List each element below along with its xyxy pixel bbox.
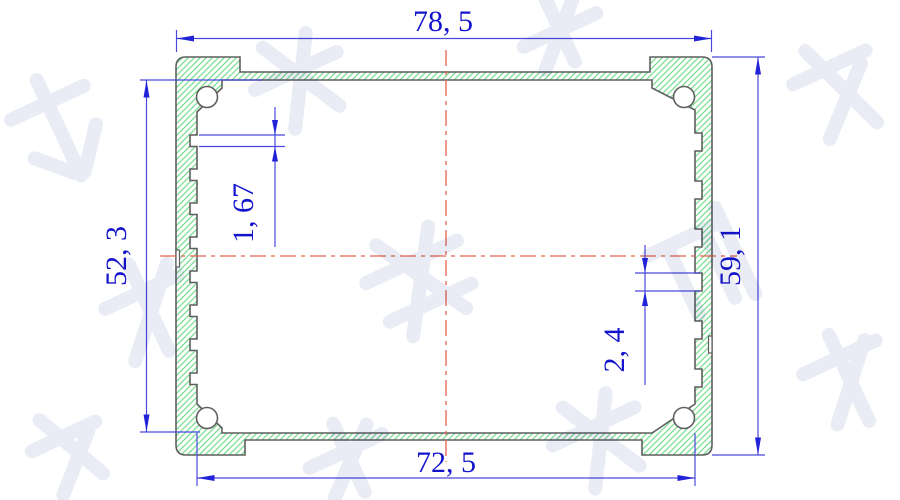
screw-channel-bottom-right bbox=[674, 408, 695, 429]
dim-right-height-label: 59, 1 bbox=[714, 226, 747, 286]
dim-right-groove-label: 2, 4 bbox=[598, 328, 631, 373]
dim-bottom-width-label: 72, 5 bbox=[416, 446, 476, 479]
dim-top-width-label: 78, 5 bbox=[413, 5, 473, 38]
left-wall-outer-step bbox=[176, 250, 180, 267]
screw-channel-top-right bbox=[674, 87, 695, 108]
screw-channel-top-left bbox=[197, 87, 218, 108]
dim-left-groove-label: 1, 67 bbox=[227, 183, 260, 243]
extrusion-profile-drawing: 78, 5 72, 5 52, 3 59, 1 bbox=[0, 0, 900, 500]
right-wall-outer-step bbox=[709, 336, 713, 353]
screw-channel-bottom-left bbox=[197, 408, 218, 429]
dim-left-height-label: 52, 3 bbox=[100, 226, 133, 286]
cad-drawing-canvas: 78, 5 72, 5 52, 3 59, 1 bbox=[0, 0, 900, 500]
